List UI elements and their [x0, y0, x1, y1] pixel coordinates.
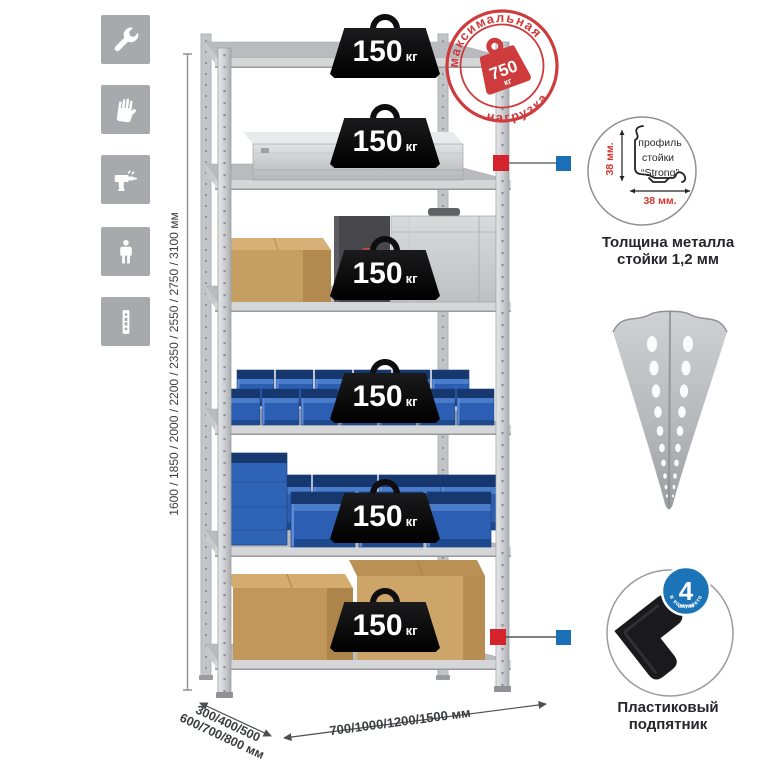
load-unit: кг [406, 623, 418, 638]
load-value: 150 [353, 28, 403, 76]
load-badge-2: 150кг [330, 104, 440, 170]
load-value: 150 [353, 118, 403, 166]
load-badge-4: 150кг [330, 359, 440, 425]
profile-dim-vertical: 38 мм. [604, 142, 616, 175]
height-dimension-line [183, 54, 192, 690]
load-unit: кг [406, 49, 418, 64]
profile-title-line2: стойки [642, 152, 674, 164]
profile-detail-circle: 38 мм. 38 мм. профиль стойки “Strong” [586, 115, 706, 230]
profile-dim-horizontal: 38 мм. [643, 195, 676, 207]
load-unit: кг [406, 394, 418, 409]
load-value: 150 [353, 373, 403, 421]
load-value: 150 [353, 250, 403, 298]
load-unit: кг [406, 271, 418, 286]
load-value: 150 [353, 602, 403, 650]
quantity-badge: 4 штуки в комплекте [662, 567, 710, 615]
stamp-weight-icon: 750 кг [471, 33, 532, 96]
load-value: 150 [353, 493, 403, 541]
load-badge-3: 150кг [330, 236, 440, 302]
load-unit: кг [406, 514, 418, 529]
profile-title-line3: “Strong” [641, 167, 679, 179]
load-badge-5: 150кг [330, 479, 440, 545]
shelving-infographic: максимальная нагрузка 750 кг 150кг 150кг… [0, 0, 765, 765]
profile-caption-line2: стойки 1,2 мм [558, 251, 765, 268]
load-badge-6: 150кг [330, 588, 440, 654]
profile-title-line1: профиль [638, 137, 682, 149]
profile-callout [493, 155, 571, 171]
load-unit: кг [406, 139, 418, 154]
foot-callout [490, 629, 571, 645]
angle-post-image [595, 298, 745, 526]
foot-caption-line2: подпятник [558, 716, 765, 733]
quantity-value: 4 [679, 576, 694, 606]
load-badge-1: 150кг [330, 14, 440, 80]
profile-caption: Толщина металла стойки 1,2 мм [558, 234, 765, 268]
profile-caption-line1: Толщина металла [558, 234, 765, 251]
foot-caption-line1: Пластиковый [558, 699, 765, 716]
foot-caption: Пластиковый подпятник [558, 699, 765, 733]
height-dimension-label: 1600 / 1850 / 2000 / 2200 / 2350 / 2550 … [167, 164, 181, 564]
max-load-stamp: максимальная нагрузка 750 кг [438, 4, 568, 130]
